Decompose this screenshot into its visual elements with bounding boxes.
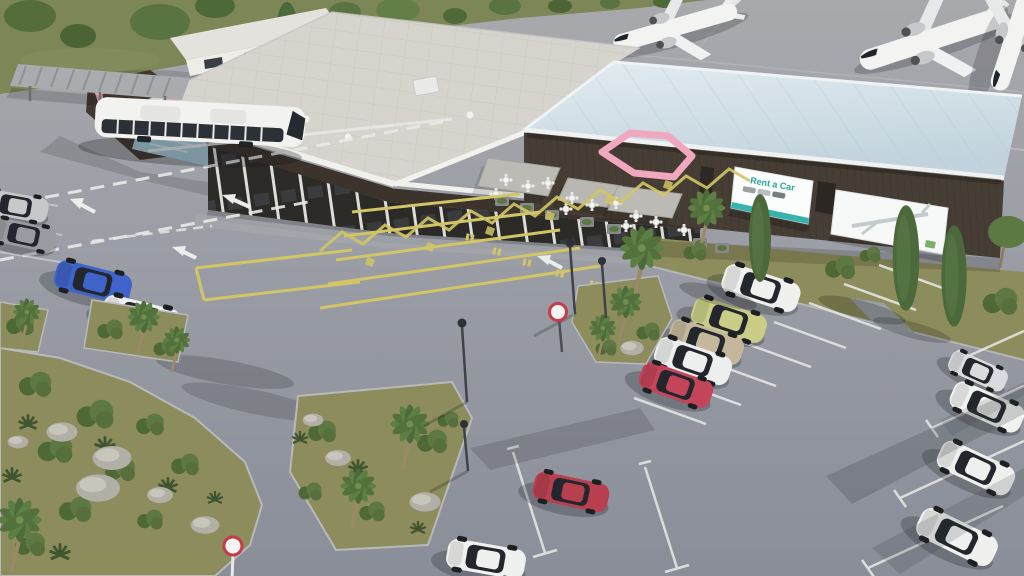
airport-scene: Rent a Car [0, 0, 1024, 576]
cypress-tree [893, 205, 919, 311]
render-viewport: Rent a Car [0, 0, 1024, 576]
cypress-tree [749, 194, 771, 282]
cypress-tree [941, 225, 966, 326]
hall-door [815, 181, 836, 215]
